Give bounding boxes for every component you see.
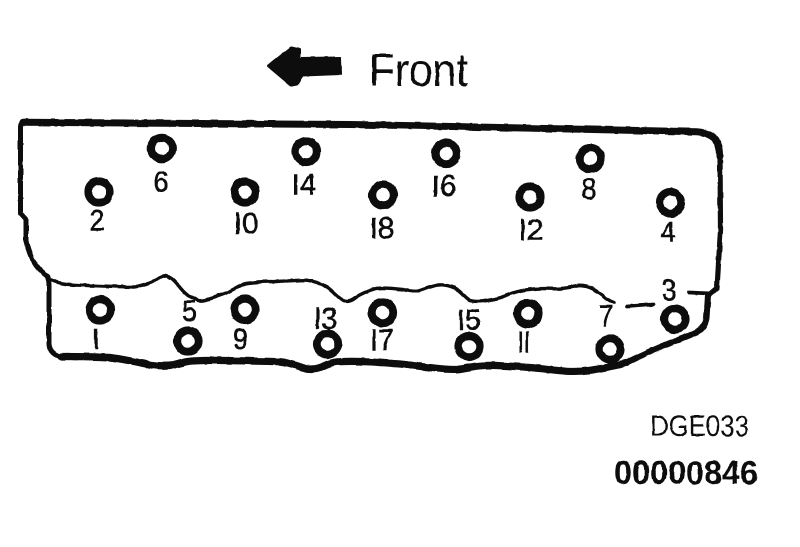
svg-text:I: I [92,323,100,356]
svg-text:8: 8 [582,173,597,206]
svg-text:2: 2 [90,205,105,238]
svg-text:4: 4 [661,216,676,249]
svg-text:9: 9 [233,323,248,356]
svg-text:I4: I4 [292,169,317,202]
svg-text:DGE033: DGE033 [650,410,749,443]
svg-text:7: 7 [599,300,613,333]
svg-text:I6: I6 [432,170,457,203]
svg-text:I7: I7 [370,324,394,357]
svg-text:5: 5 [182,295,197,328]
svg-text:00000846: 00000846 [614,454,758,491]
svg-text:3: 3 [662,274,677,307]
svg-text:6: 6 [154,166,169,199]
svg-text:I0: I0 [234,208,259,241]
svg-text:Front: Front [369,44,468,96]
svg-text:I8: I8 [370,212,395,245]
svg-text:II: II [518,326,531,359]
svg-text:I2: I2 [519,214,544,247]
